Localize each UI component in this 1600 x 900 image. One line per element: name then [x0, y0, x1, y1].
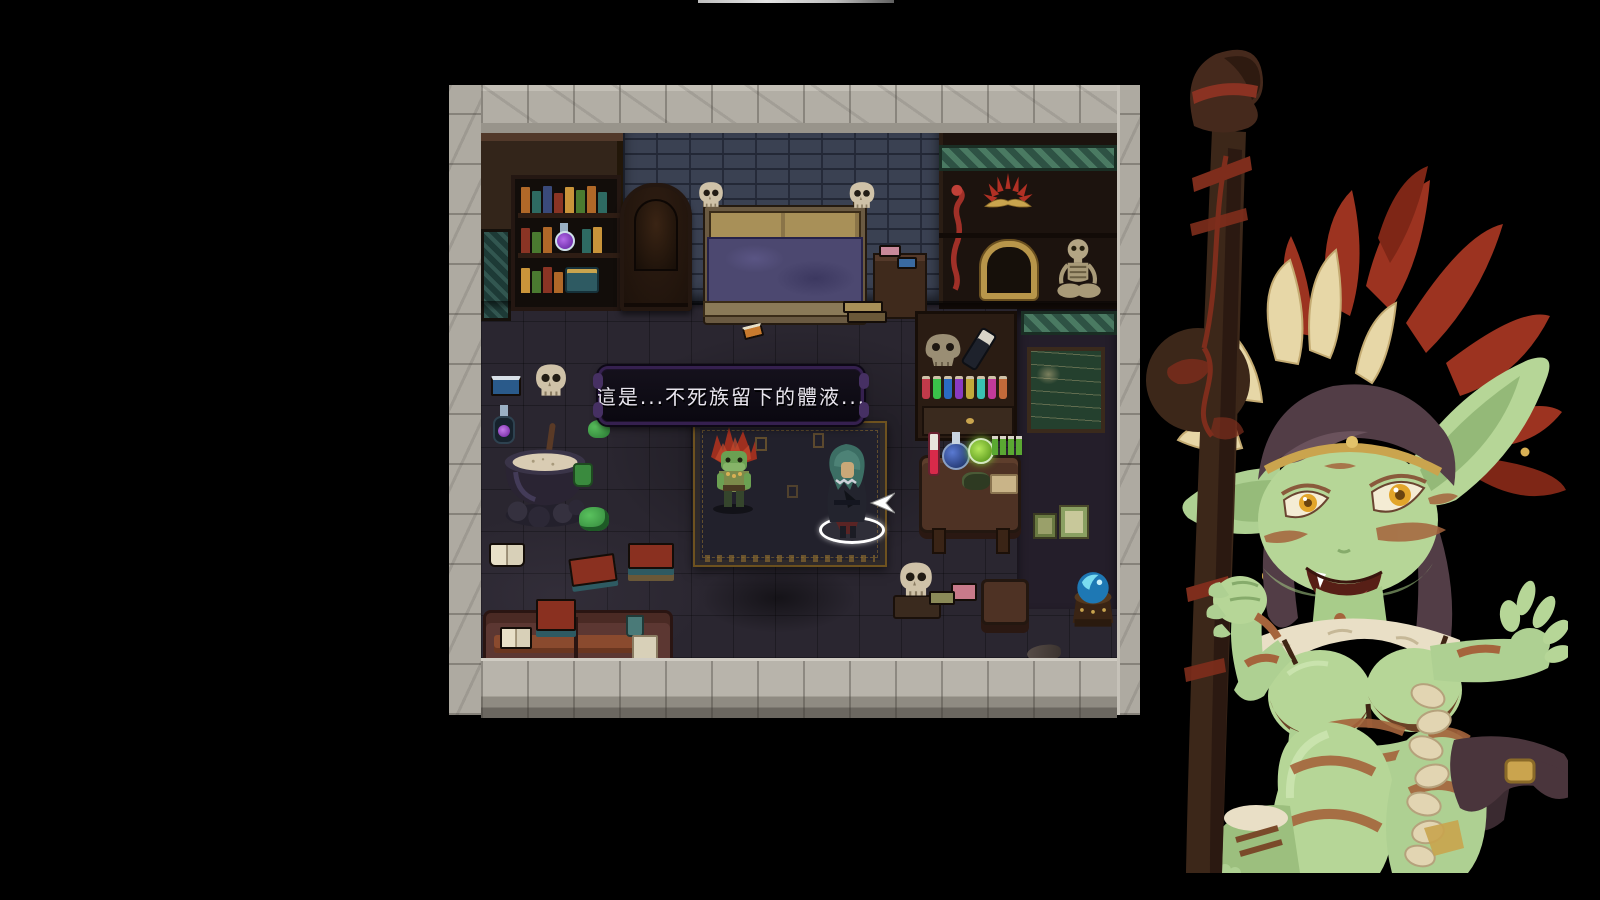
- bookshelf-row: [518, 219, 620, 258]
- green-flask-icon: [968, 438, 994, 464]
- open-book: [489, 543, 525, 567]
- book-stack: [628, 543, 674, 569]
- gold-arch-frame: [981, 241, 1037, 299]
- green-pot: [573, 463, 593, 487]
- skull-icon: [697, 181, 725, 208]
- game-screen: 這是...不死族留下的體液...: [0, 0, 1600, 900]
- blue-grimoire: [491, 376, 521, 396]
- dialogue-text: 這是...不死族留下的體液...: [596, 381, 866, 410]
- stone-frame-top: [481, 85, 1117, 138]
- book-stack: [847, 311, 887, 323]
- green-book: [929, 591, 955, 605]
- monster-skull-icon: [922, 332, 964, 368]
- bookshelf-row: [518, 179, 620, 218]
- purple-potion-icon: [554, 223, 580, 253]
- carpet-rune-mark: [787, 485, 798, 498]
- skull-icon: [847, 181, 877, 209]
- small-table: [981, 579, 1029, 625]
- seated-skeleton-icon: [1051, 237, 1105, 301]
- potion-cabinet[interactable]: [915, 311, 1017, 441]
- feather-headdress-icon: [977, 173, 1039, 231]
- tilted-bottle-icon: [960, 326, 998, 371]
- dialogue-box[interactable]: 這是...不死族留下的體液...: [598, 366, 864, 425]
- flask-neck: [952, 432, 960, 444]
- chalkboard[interactable]: [1027, 347, 1105, 433]
- bookshelf[interactable]: [511, 175, 621, 311]
- small-chest-icon: [565, 267, 599, 293]
- dialogue-ornament: [593, 373, 603, 389]
- table-leg: [996, 528, 1010, 554]
- stone-frame-left: [449, 85, 481, 715]
- carpet-runes: [705, 555, 875, 562]
- dialogue-ornament: [593, 402, 603, 418]
- wall-card: [1033, 513, 1057, 539]
- crystal-ball[interactable]: [1069, 565, 1117, 631]
- window-top-edge: [698, 0, 894, 3]
- scroll-icon: [990, 474, 1018, 494]
- herb-pile-icon: [962, 472, 990, 490]
- cabinet-trim: [939, 145, 1117, 171]
- goblin-shaman-npc[interactable]: [705, 423, 761, 515]
- wall-card: [1059, 505, 1089, 539]
- alchemy-table[interactable]: [919, 455, 1021, 533]
- red-staff-icon: [945, 179, 967, 297]
- pink-book: [879, 245, 901, 257]
- table-leg: [932, 528, 946, 554]
- bed-blanket: [707, 237, 863, 307]
- paper-sheets: [632, 635, 658, 658]
- green-vial-row: [992, 436, 1022, 455]
- cabinet-trim-right: [1021, 311, 1117, 335]
- cabinet-shelf: [939, 233, 1117, 238]
- white-arrow-cursor: [869, 491, 895, 515]
- scattered-book: [568, 553, 617, 587]
- bookshelf-row: [518, 259, 620, 293]
- book-stack: [536, 599, 576, 631]
- fallen-bottle: [742, 323, 765, 340]
- sofa[interactable]: [483, 610, 673, 658]
- drawer-knob-icon: [966, 418, 974, 424]
- cloaked-adventurer-player[interactable]: [818, 440, 876, 540]
- skull-icon: [533, 363, 569, 397]
- dialogue-ornament: [859, 402, 869, 418]
- blue-book: [897, 257, 917, 269]
- dialogue-ornament: [859, 373, 869, 389]
- stone-frame-bottom: [481, 658, 1117, 718]
- ornate-throne[interactable]: [620, 183, 692, 311]
- potion-row: [922, 376, 1007, 399]
- floor-shadow: [700, 563, 856, 633]
- blue-flask-icon: [942, 442, 970, 470]
- mug: [626, 615, 644, 637]
- wooden-staff-icon: [1146, 50, 1263, 873]
- rat-sack: [1026, 643, 1061, 658]
- open-book: [500, 627, 532, 649]
- goblin-shaman-portrait: [1128, 28, 1568, 873]
- green-slime: [579, 507, 609, 531]
- red-test-tube-icon: [928, 432, 940, 476]
